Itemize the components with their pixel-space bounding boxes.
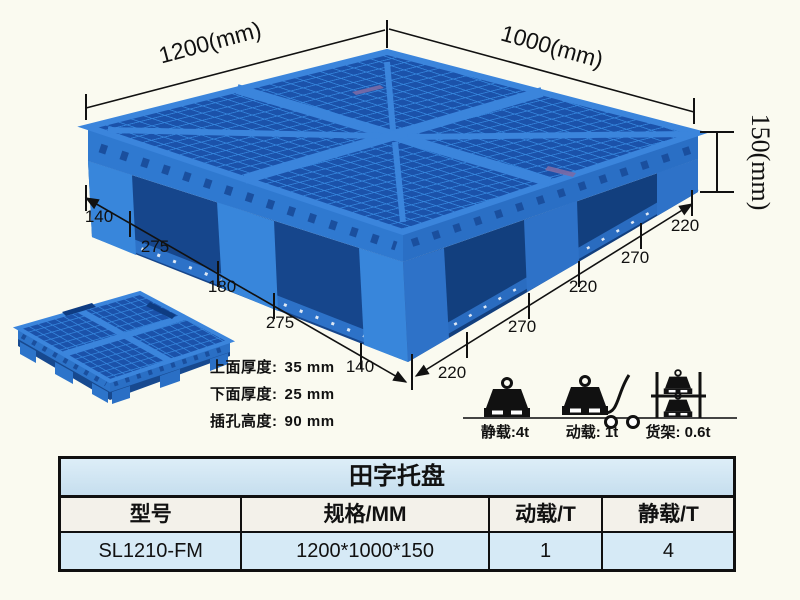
static-load-weight-icon xyxy=(484,379,530,418)
header-dynamic-load: 动载/T xyxy=(490,498,604,531)
cell-dynamic-load: 1 xyxy=(490,533,604,569)
static-load-caption: 静载:4t xyxy=(481,421,529,442)
spec-bottom-thickness: 下面厚度:25 mm xyxy=(210,383,335,404)
spec-fork-height: 插孔高度:90 mm xyxy=(210,410,335,431)
dimension-height-150: 150(mm) xyxy=(700,114,775,211)
spec-value: 90 mm xyxy=(285,413,335,430)
spec-label: 插孔高度: xyxy=(210,413,278,430)
dim-seg-label: 270 xyxy=(621,248,649,267)
dim-label-150: 150(mm) xyxy=(746,114,775,211)
load-capacity-icons xyxy=(463,370,737,427)
dim-seg-label: 275 xyxy=(266,313,294,332)
dim-label-1200: 1200(mm) xyxy=(156,16,264,68)
dynamic-load-trolley-icon xyxy=(562,375,639,428)
rack-load-shelf-icon xyxy=(651,370,706,418)
cell-spec: 1200*1000*150 xyxy=(242,533,489,569)
dim-seg-label: 275 xyxy=(141,237,169,256)
table-row: SL1210-FM 1200*1000*150 1 4 xyxy=(61,533,733,569)
header-model: 型号 xyxy=(61,498,242,531)
cell-model: SL1210-FM xyxy=(61,533,242,569)
dim-seg-label: 220 xyxy=(671,216,699,235)
dynamic-load-caption: 动载: 1t xyxy=(566,421,619,442)
spec-top-thickness: 上面厚度:35 mm xyxy=(210,356,335,377)
spec-label: 上面厚度: xyxy=(210,359,278,376)
cell-static-load: 4 xyxy=(603,533,733,569)
pallet-diagram: 1200(mm) 1000(mm) 150(mm) 140 275 180 27… xyxy=(0,0,800,455)
product-sheet: 1200(mm) 1000(mm) 150(mm) 140 275 180 27… xyxy=(0,0,800,600)
spec-label: 下面厚度: xyxy=(210,386,278,403)
dim-seg-label: 140 xyxy=(85,207,113,226)
header-spec: 规格/MM xyxy=(242,498,489,531)
table-title: 田字托盘 xyxy=(61,459,733,498)
dim-seg-label: 180 xyxy=(208,277,236,296)
dim-seg-label: 220 xyxy=(438,363,466,382)
spec-value: 35 mm xyxy=(285,359,335,376)
spec-value: 25 mm xyxy=(285,386,335,403)
dim-seg-label: 140 xyxy=(346,357,374,376)
dim-label-1000: 1000(mm) xyxy=(498,20,606,73)
spec-table: 田字托盘 型号 规格/MM 动载/T 静载/T SL1210-FM 1200*1… xyxy=(58,456,736,572)
dim-seg-label: 220 xyxy=(569,277,597,296)
dim-seg-label: 270 xyxy=(508,317,536,336)
thumbnail-pallet-illustration xyxy=(18,293,230,404)
table-header-row: 型号 规格/MM 动载/T 静载/T xyxy=(61,498,733,533)
rack-load-caption: 货架: 0.6t xyxy=(645,421,710,442)
header-static-load: 静载/T xyxy=(603,498,733,531)
